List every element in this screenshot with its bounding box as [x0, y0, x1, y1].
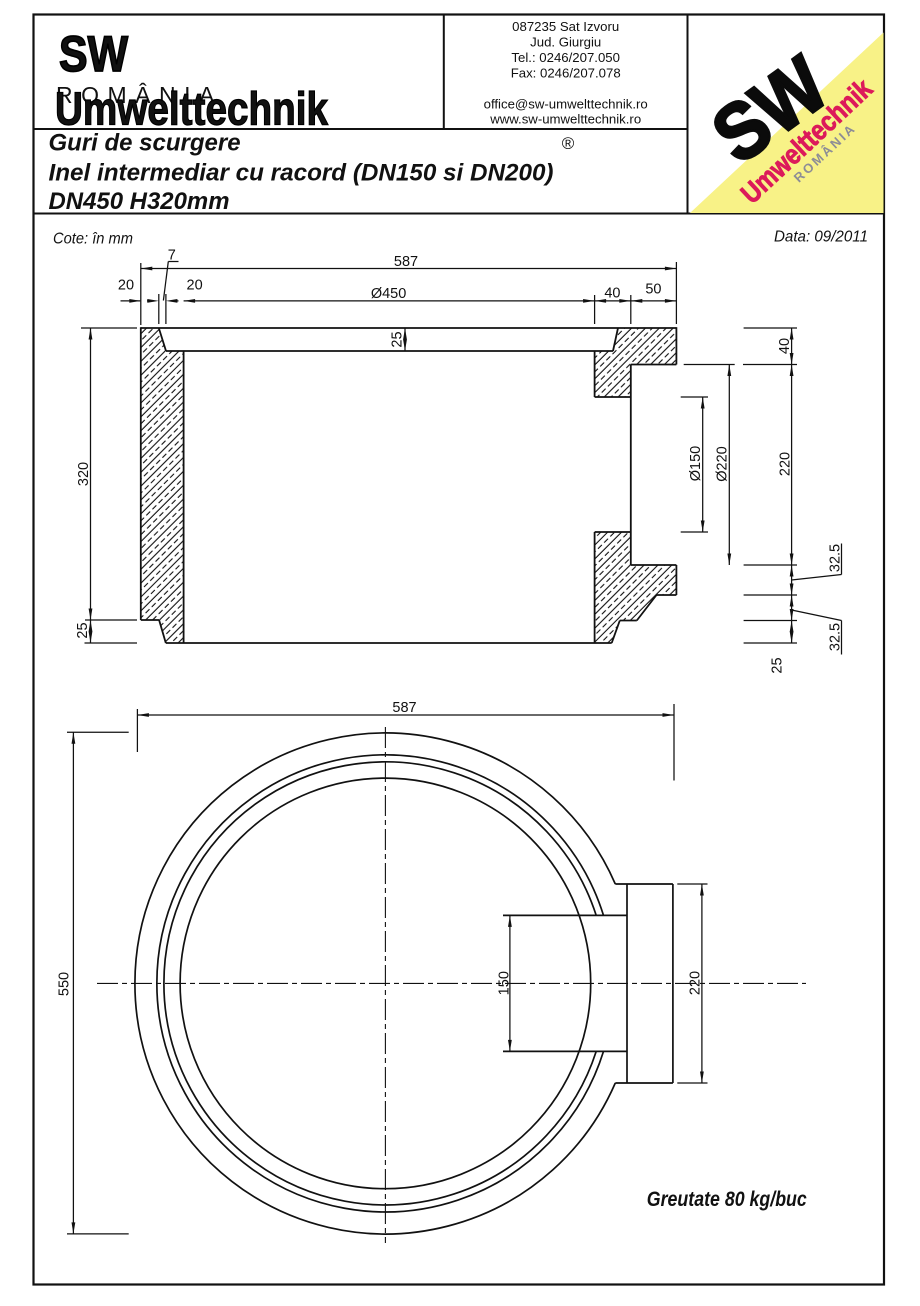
svg-text:Greutate 80 kg/buc: Greutate 80 kg/buc [647, 1187, 807, 1211]
svg-text:32.5: 32.5 [828, 623, 844, 651]
svg-text:20: 20 [187, 278, 203, 294]
svg-text:587: 587 [392, 700, 416, 716]
svg-text:25: 25 [390, 331, 406, 347]
svg-text:Ø450: Ø450 [371, 286, 406, 302]
svg-text:Fax: 0246/207.078: Fax: 0246/207.078 [511, 66, 621, 81]
svg-text:40: 40 [777, 338, 793, 354]
svg-text:www.sw-umwelttechnik.ro: www.sw-umwelttechnik.ro [489, 112, 641, 127]
svg-text:Ø220: Ø220 [715, 446, 731, 481]
svg-text:220: 220 [688, 971, 704, 995]
svg-text:320: 320 [76, 462, 92, 486]
svg-text:Umwelttechnik: Umwelttechnik [55, 83, 328, 135]
svg-text:Data: 09/2011: Data: 09/2011 [774, 229, 868, 246]
svg-text:office@sw-umwelttechnik.ro: office@sw-umwelttechnik.ro [484, 97, 648, 112]
svg-text:Jud. Giurgiu: Jud. Giurgiu [530, 35, 601, 50]
svg-text:®: ® [562, 134, 575, 153]
svg-text:DN450 H320mm: DN450 H320mm [49, 188, 230, 215]
svg-text:Guri de scurgere: Guri de scurgere [49, 130, 241, 157]
svg-text:587: 587 [394, 254, 418, 270]
svg-text:40: 40 [604, 286, 620, 302]
svg-text:Cote: în mm: Cote: în mm [53, 231, 133, 248]
svg-text:087235 Sat Izvoru: 087235 Sat Izvoru [512, 19, 619, 34]
svg-text:32.5: 32.5 [828, 544, 844, 572]
svg-text:Ø150: Ø150 [688, 446, 704, 481]
svg-text:7: 7 [168, 248, 176, 264]
svg-text:150: 150 [496, 971, 512, 995]
svg-text:25: 25 [75, 622, 91, 638]
svg-text:25: 25 [770, 657, 786, 673]
svg-text:Tel.: 0246/207.050: Tel.: 0246/207.050 [511, 50, 620, 65]
svg-text:20: 20 [118, 278, 134, 294]
svg-text:50: 50 [645, 282, 661, 298]
svg-text:Inel intermediar cu racord (DN: Inel intermediar cu racord (DN150 si DN2… [49, 160, 554, 187]
svg-text:SW: SW [59, 26, 129, 82]
svg-text:550: 550 [57, 972, 73, 996]
svg-text:220: 220 [778, 452, 794, 476]
